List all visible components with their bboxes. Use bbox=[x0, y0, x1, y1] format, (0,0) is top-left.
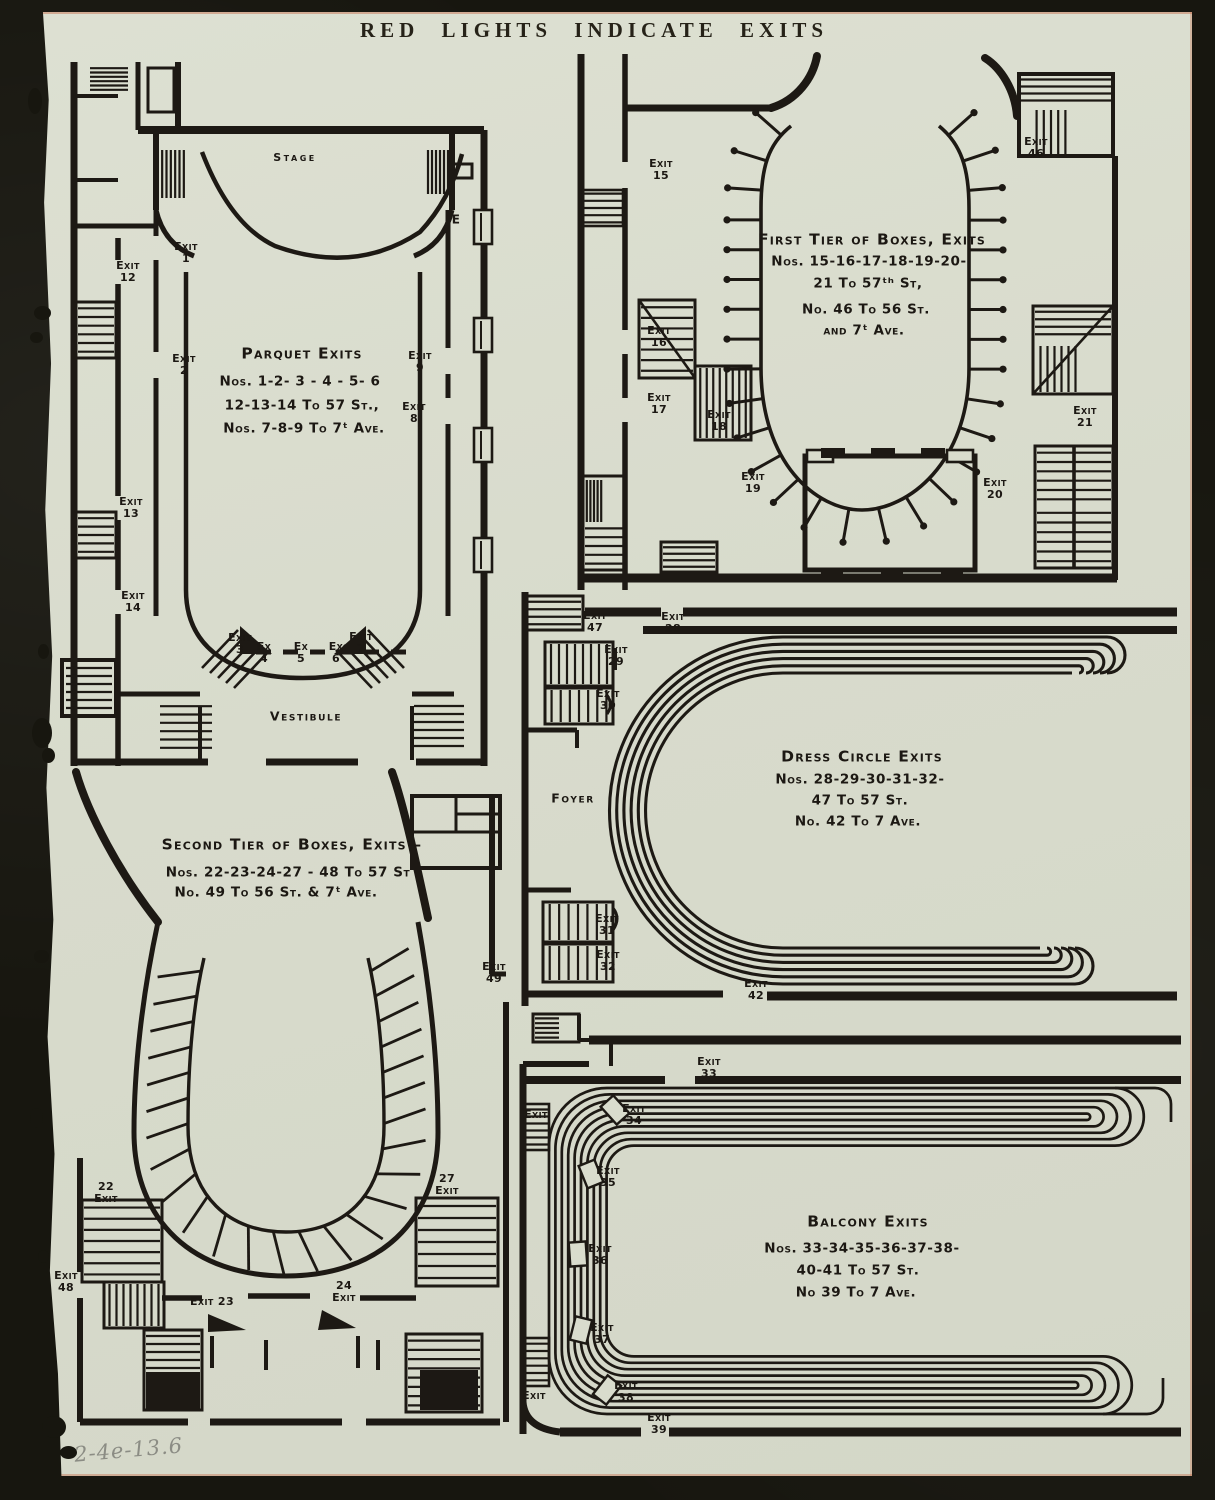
torn-edge-mark bbox=[28, 88, 42, 114]
dress-circle-floor-plan-drawing bbox=[515, 590, 1190, 1010]
torn-edge-mark bbox=[42, 748, 55, 763]
first-tier-floor-plan-drawing bbox=[565, 50, 1125, 595]
parquet-floor-plan-drawing bbox=[60, 60, 500, 770]
scanned-program-page: RED LIGHTS INDICATE EXITS Stage Exit 1 E… bbox=[0, 0, 1215, 1500]
second-tier-floor-plan-drawing bbox=[60, 770, 520, 1445]
second-tier-plan: Second Tier of Boxes, Exits – Nos. 22-23… bbox=[60, 770, 520, 1445]
balcony-floor-plan-drawing bbox=[515, 1010, 1190, 1445]
torn-edge-mark bbox=[34, 306, 51, 320]
torn-edge-mark bbox=[32, 718, 52, 748]
torn-edge-mark bbox=[30, 332, 43, 343]
torn-edge-mark bbox=[34, 950, 49, 963]
parquet-plan: Stage Exit 1 Exit 12 Parquet Exits Nos. … bbox=[60, 60, 500, 770]
torn-edge-mark bbox=[38, 644, 49, 659]
torn-edge-mark bbox=[38, 1250, 49, 1263]
dress-circle-plan: Exit 47 Exit 28 Exit 29 Exit 30 Foyer Dr… bbox=[515, 590, 1190, 1010]
torn-edge-mark bbox=[30, 1108, 43, 1128]
page-title: RED LIGHTS INDICATE EXITS bbox=[360, 18, 828, 43]
first-tier-plan: Exit 15 Exit 46 First Tier of Boxes, Exi… bbox=[565, 50, 1125, 595]
balcony-plan: Exit 33 Exit Exit 34 Exit 35 Balcony Exi… bbox=[515, 1010, 1190, 1445]
